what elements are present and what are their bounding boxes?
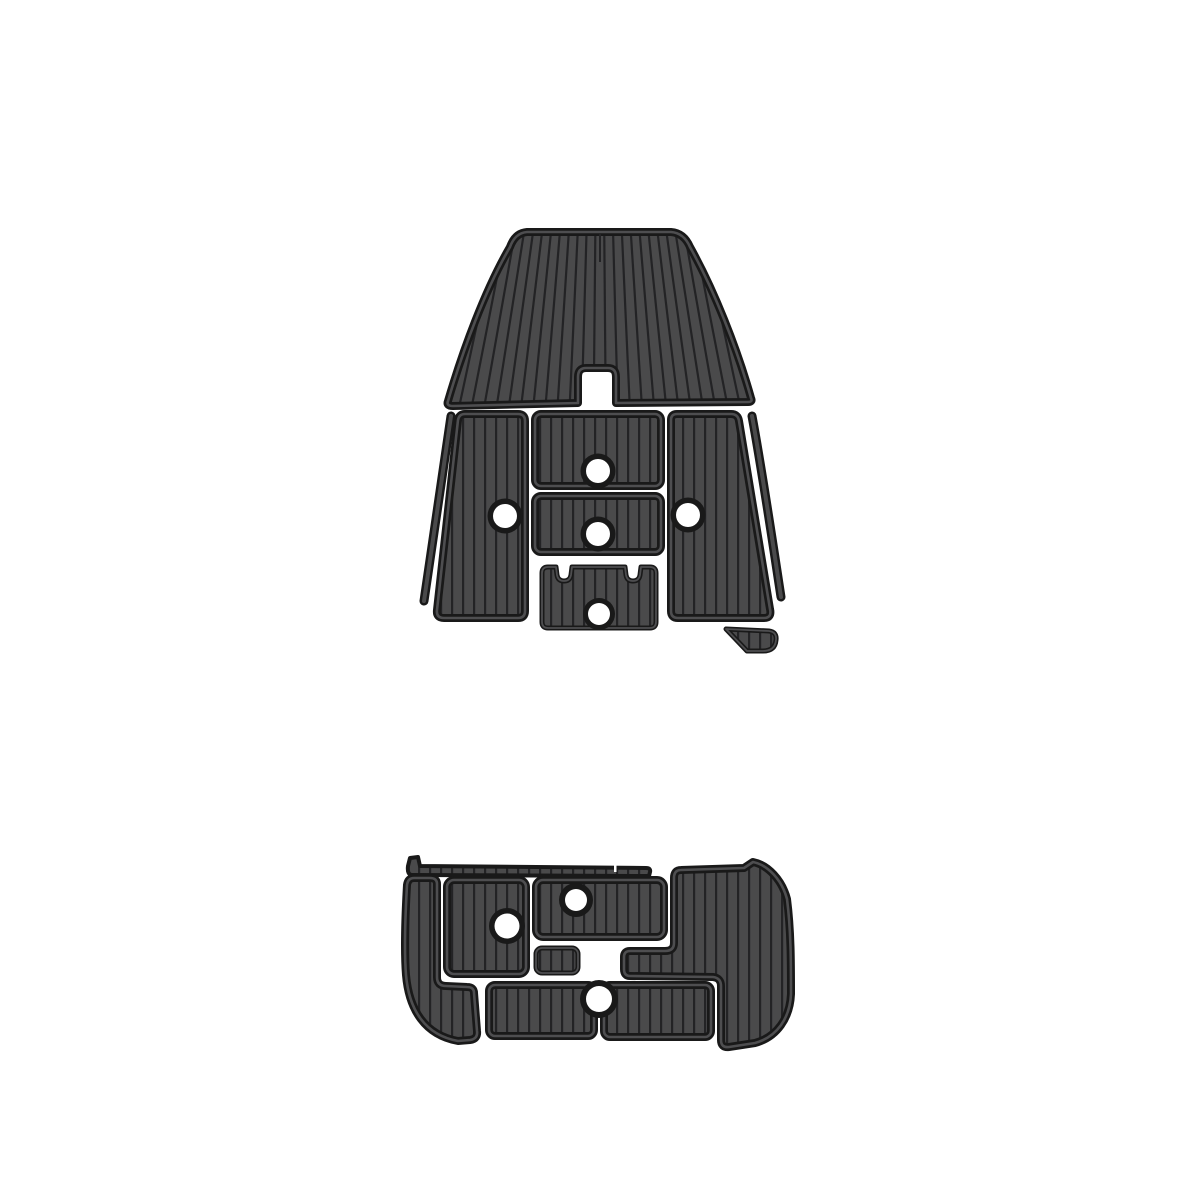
platform-bottom-starboard-pad <box>604 985 711 1037</box>
mount-hole <box>671 498 706 533</box>
product-canvas <box>0 0 1200 1200</box>
platform-pad-set <box>405 857 791 1047</box>
mount-hole <box>489 908 525 944</box>
platform-center-pad <box>536 880 664 937</box>
mount-hole <box>581 517 616 552</box>
mount-hole <box>488 499 523 534</box>
mount-hole <box>559 883 593 917</box>
mount-hole <box>580 980 618 1018</box>
trim-strip-seam-nick <box>614 864 617 872</box>
bow-pad-set <box>424 226 781 651</box>
mount-hole <box>581 454 616 489</box>
platform-trim-strip <box>408 857 650 876</box>
platform-bottom-port-pad <box>489 985 594 1036</box>
bow-pad-dome <box>448 226 755 416</box>
bow-corner-wedge <box>726 629 776 651</box>
product-image <box>0 0 1200 1200</box>
platform-small-pad <box>536 948 578 973</box>
mount-hole <box>583 598 615 630</box>
